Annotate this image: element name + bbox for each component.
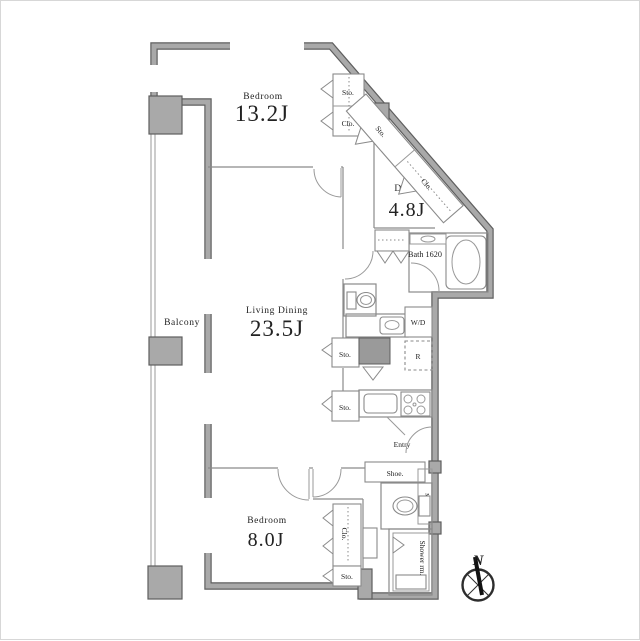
door-entry	[406, 427, 432, 453]
window	[202, 373, 214, 424]
room-size: 23.5J	[250, 316, 304, 341]
bathtub-icon	[446, 236, 486, 289]
door-hall-bottom	[313, 469, 341, 497]
pillars	[148, 96, 441, 599]
shower-room-label: Shower rm.	[418, 541, 427, 576]
pillar	[149, 96, 182, 134]
bath-label: Bath 1620	[408, 250, 442, 259]
floor-plan: Balcony Bedroom 13.2J Sto	[1, 1, 640, 641]
room-size: 8.0J	[248, 529, 285, 551]
folding-door-icon	[363, 367, 383, 380]
shoe-label: Shoe.	[387, 469, 404, 478]
refrigerator-space: R	[405, 341, 432, 370]
pillar	[429, 461, 441, 473]
window	[202, 259, 214, 314]
kitchen-sink-icon	[364, 394, 397, 413]
storage-label: Sto.	[341, 572, 353, 581]
room-bedroom-main: Bedroom 13.2J Sto. Clo.	[235, 74, 364, 197]
toilet-room-middle	[344, 284, 376, 316]
shower-bench-icon	[396, 575, 426, 589]
storage-middle: Sto.	[322, 338, 390, 380]
room-name: Bedroom	[247, 516, 287, 526]
room-size: 4.8J	[389, 199, 426, 221]
pillar	[149, 337, 182, 365]
shower-room: Shower rm.	[389, 529, 432, 595]
duct-shaft	[359, 338, 390, 364]
room-bedroom-second: Bedroom 8.0J Clo. Sto.	[247, 469, 377, 586]
washer-dryer-label: W/D	[411, 318, 426, 327]
folding-door-icon	[321, 80, 333, 98]
folding-door-icon	[393, 537, 404, 553]
balcony-label: Balcony	[164, 318, 200, 328]
closet-label: Clo.	[342, 119, 355, 128]
room-living-dining: Living Dining 23.5J	[246, 306, 308, 341]
washer-dryer-space: W/D	[405, 307, 432, 337]
folding-door-icon	[323, 538, 333, 554]
window	[202, 498, 214, 553]
folding-door-icon	[377, 251, 393, 263]
room-name: Living Dining	[246, 306, 308, 316]
kitchen: Sto.	[322, 390, 432, 421]
closet-label: Clo.	[340, 528, 349, 541]
folding-door-icon	[321, 112, 333, 130]
room-bath: Bath 1620	[408, 233, 488, 292]
north-label: N	[472, 553, 485, 569]
pillar	[148, 566, 182, 599]
storage-label: Sto.	[339, 403, 351, 412]
closet-bedroom-second: Clo.	[323, 504, 377, 566]
cabinet-icon	[363, 528, 377, 558]
toilet-icon	[347, 292, 375, 309]
toilet-room-bottom	[381, 483, 432, 529]
room-den: DEN 4.8J Sto. Clo.	[335, 94, 463, 233]
bath-counter-icon	[410, 234, 446, 244]
toilet-icon	[393, 496, 430, 516]
vanity-counter	[346, 314, 408, 337]
storage-label: Sto.	[342, 88, 354, 97]
storage-label: Sto.	[339, 350, 351, 359]
floor-plan-canvas: Balcony Bedroom 13.2J Sto	[0, 0, 640, 640]
folding-door-icon	[323, 510, 333, 526]
compass-icon: N	[463, 553, 494, 601]
sink-icon	[380, 317, 404, 334]
room-size: 13.2J	[235, 101, 289, 126]
entry: Entry	[387, 417, 432, 453]
shoe-cabinet: Shoe.	[365, 462, 425, 482]
refrigerator-label: R	[415, 352, 420, 361]
folding-door-icon	[322, 343, 332, 357]
folding-door-icon	[322, 396, 332, 412]
stove-icon	[401, 392, 430, 416]
folding-door-icon	[323, 569, 333, 583]
window	[230, 40, 304, 52]
hall-closet	[345, 230, 409, 279]
door-bath	[411, 263, 439, 291]
door-hall	[345, 251, 373, 279]
folding-door-icon	[393, 251, 409, 263]
entry-label: Entry	[394, 440, 411, 449]
door-bedroom-main	[314, 168, 341, 197]
window	[148, 65, 160, 92]
door-bedroom-second	[278, 469, 309, 500]
